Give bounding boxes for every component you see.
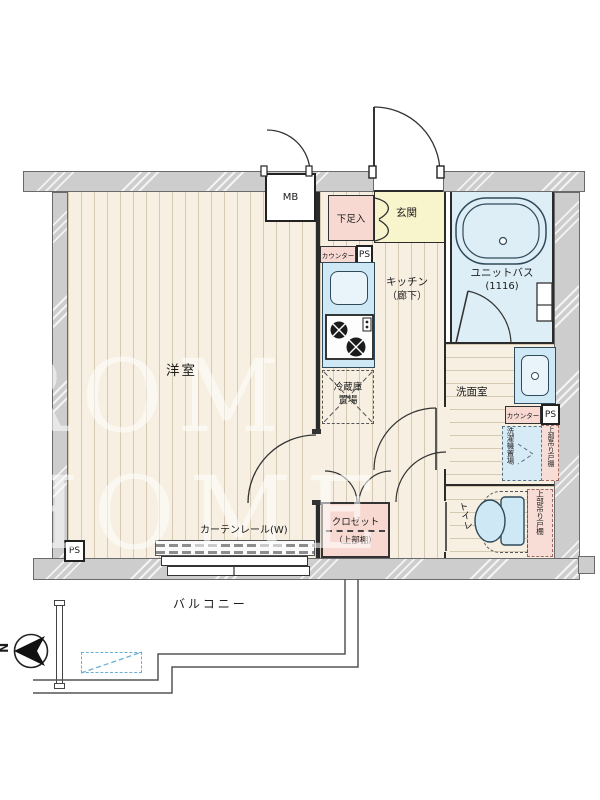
hatch-diagonal bbox=[81, 652, 142, 673]
entrance-door-arc bbox=[374, 107, 440, 173]
unit-bath-label-1: ユニットバス bbox=[452, 267, 552, 279]
balcony-label: バルコニー bbox=[173, 598, 248, 612]
main-room-door-arc bbox=[248, 435, 316, 503]
mb-door-jamb-right bbox=[306, 166, 312, 176]
entrance-jamb-left bbox=[369, 166, 376, 178]
balcony-edge-inner bbox=[33, 579, 345, 680]
washroom-label: 洗面室 bbox=[456, 386, 488, 398]
kitchen-label-2: （廊下） bbox=[374, 291, 440, 303]
toilet-door-arc bbox=[396, 452, 446, 502]
main-room-door-jamb-bottom bbox=[312, 500, 321, 505]
entrance-step-mark bbox=[375, 198, 388, 241]
stove-knob-2 bbox=[366, 326, 369, 329]
compass-north-label: N bbox=[0, 643, 12, 653]
main-room-door-jamb-top bbox=[312, 429, 321, 434]
toilet-bowl bbox=[475, 500, 505, 542]
main-room-label: 洋室 bbox=[166, 364, 197, 380]
stove-knob-1 bbox=[366, 321, 369, 324]
bath-door-arc bbox=[468, 291, 511, 343]
entrance-label: 玄関 bbox=[396, 207, 417, 219]
fridge-label-2: 置場 bbox=[322, 396, 374, 407]
fridge-label-1: 冷蔵庫 bbox=[322, 383, 374, 394]
bathtub-drain bbox=[500, 238, 507, 245]
washroom-door-arc bbox=[374, 408, 436, 470]
entrance-jamb-right bbox=[437, 166, 444, 178]
closet-door-left-arc bbox=[325, 471, 357, 503]
stove-panel bbox=[363, 318, 371, 331]
floor-plan: MB 下足入 カウンター PS カウンター PS 洗濯機置場 上部吊り戸棚 上部… bbox=[0, 0, 600, 800]
mb-door-jamb-left bbox=[261, 166, 267, 176]
washer-tap-mark bbox=[518, 444, 533, 464]
closet-door-right-arc bbox=[359, 471, 391, 503]
kitchen-label-1: キッチン bbox=[374, 276, 440, 288]
unit-bath-label-2: (1116) bbox=[452, 281, 552, 293]
curtain-rail-label: カーテンレール(W) bbox=[200, 525, 288, 537]
bath-door-leaf bbox=[456, 291, 468, 343]
plan-linework bbox=[0, 0, 600, 800]
bathtub-outer bbox=[456, 198, 546, 264]
mb-door-arc bbox=[267, 130, 310, 173]
